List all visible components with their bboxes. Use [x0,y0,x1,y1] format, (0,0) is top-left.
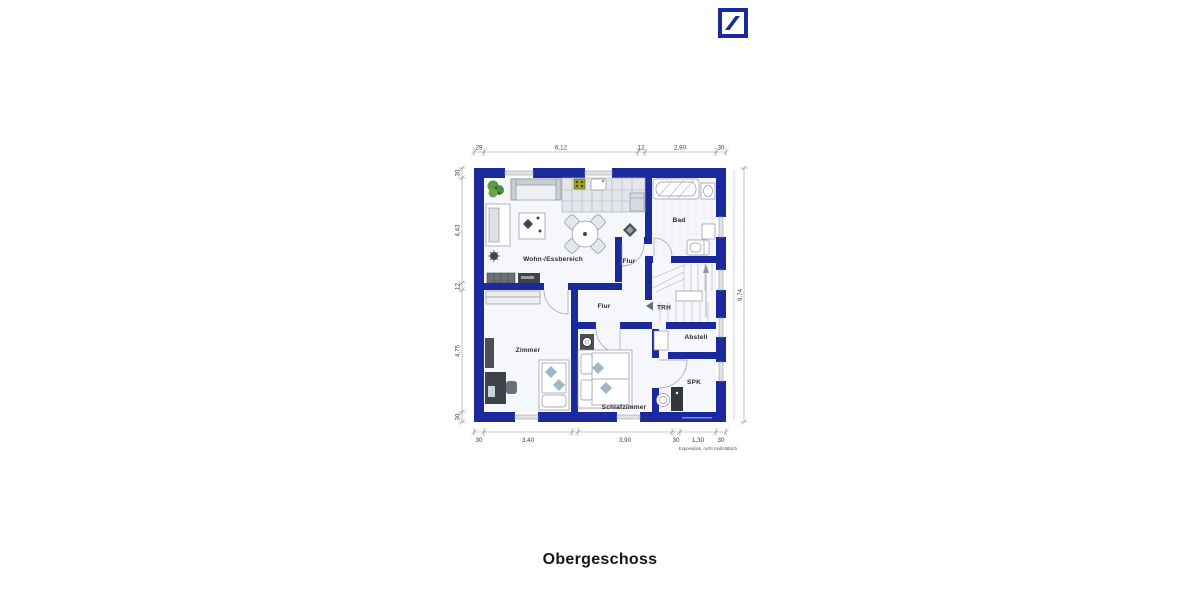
dim-bottom-1: 3,40 [522,437,535,444]
sofa-icon [511,179,561,200]
bath-shelf-icon [702,224,715,239]
room-label-hall-lower: Flur [597,303,610,310]
floor-caption: Obergeschoss [0,551,1200,569]
room-label-bath: Bad [673,217,686,224]
cabinet-icon [485,338,494,368]
dim-bottom-3: 30 [673,437,680,444]
boiler-icon [671,387,683,411]
fridge-icon [630,193,644,211]
wall-left [474,168,484,422]
dimension-line-bottom [472,428,729,436]
scale-note: Exposéplan, nicht maßstäblich [679,446,738,451]
window [716,270,726,290]
stove-icon [574,179,585,189]
desk-chair-icon [506,381,517,394]
dim-bottom-5: 30 [718,437,725,444]
dimension-line-left [458,166,466,425]
wall-watermark [682,417,712,419]
dimension-line-top [472,148,729,156]
window [716,318,726,337]
page: Wohn-/Essbereich Bad Flur Flur TRH Abste… [0,0,1200,600]
washbasin-icon [701,183,715,199]
window [617,412,640,422]
dim-left-0: 30 [455,169,462,176]
window [585,168,612,178]
window [515,412,538,422]
dim-top-4: 30 [718,145,725,152]
room-label-living: Wohn-/Essbereich [523,256,583,263]
kitchen-counter-icon [562,178,645,212]
room-label-storage: Abstell [684,334,707,341]
dim-bottom-2: 3,90 [619,437,632,444]
window [505,168,533,178]
room-label-staircase: TRH [657,305,671,312]
window [716,217,726,237]
room-label-room: Zimmer [516,347,541,354]
single-bed-icon [539,360,569,410]
window [716,362,726,381]
sideboard-icon [487,273,515,283]
storage-shelf-icon [654,331,668,350]
floorplan: Wohn-/Essbereich Bad Flur Flur TRH Abste… [440,135,770,465]
deutsche-bank-logo [718,8,748,38]
tv-board-icon [518,273,540,283]
wall-right [716,168,726,422]
toilet-icon [687,240,709,255]
dim-left-1: 4,43 [455,224,462,237]
dim-bottom-0: 30 [476,437,483,444]
sink-icon [591,179,606,190]
dim-top-0: 29 [476,145,483,152]
spk-washer-icon [657,394,670,407]
dim-top-1: 6,12 [555,145,568,152]
dim-bottom-4: 1,30 [692,437,705,444]
room-label-hall-upper: Flur [622,258,635,265]
wardrobe-icon [486,291,540,304]
dim-right-0: 9,74 [737,288,744,301]
dim-top-2: 12 [638,145,645,152]
coffee-table-icon [519,213,545,239]
shelf-sofa-icon [486,204,510,246]
dim-left-2: 12 [455,283,462,290]
double-bed-icon [578,350,632,408]
dim-left-3: 4,75 [455,344,462,357]
bathtub-icon [653,179,699,199]
room-label-pantry: SPK [687,379,701,386]
dim-left-4: 30 [455,413,462,420]
room-label-bedroom: Schlafzimmer [602,404,647,411]
dim-top-3: 2,90 [674,145,687,152]
washer-icon [580,334,594,350]
